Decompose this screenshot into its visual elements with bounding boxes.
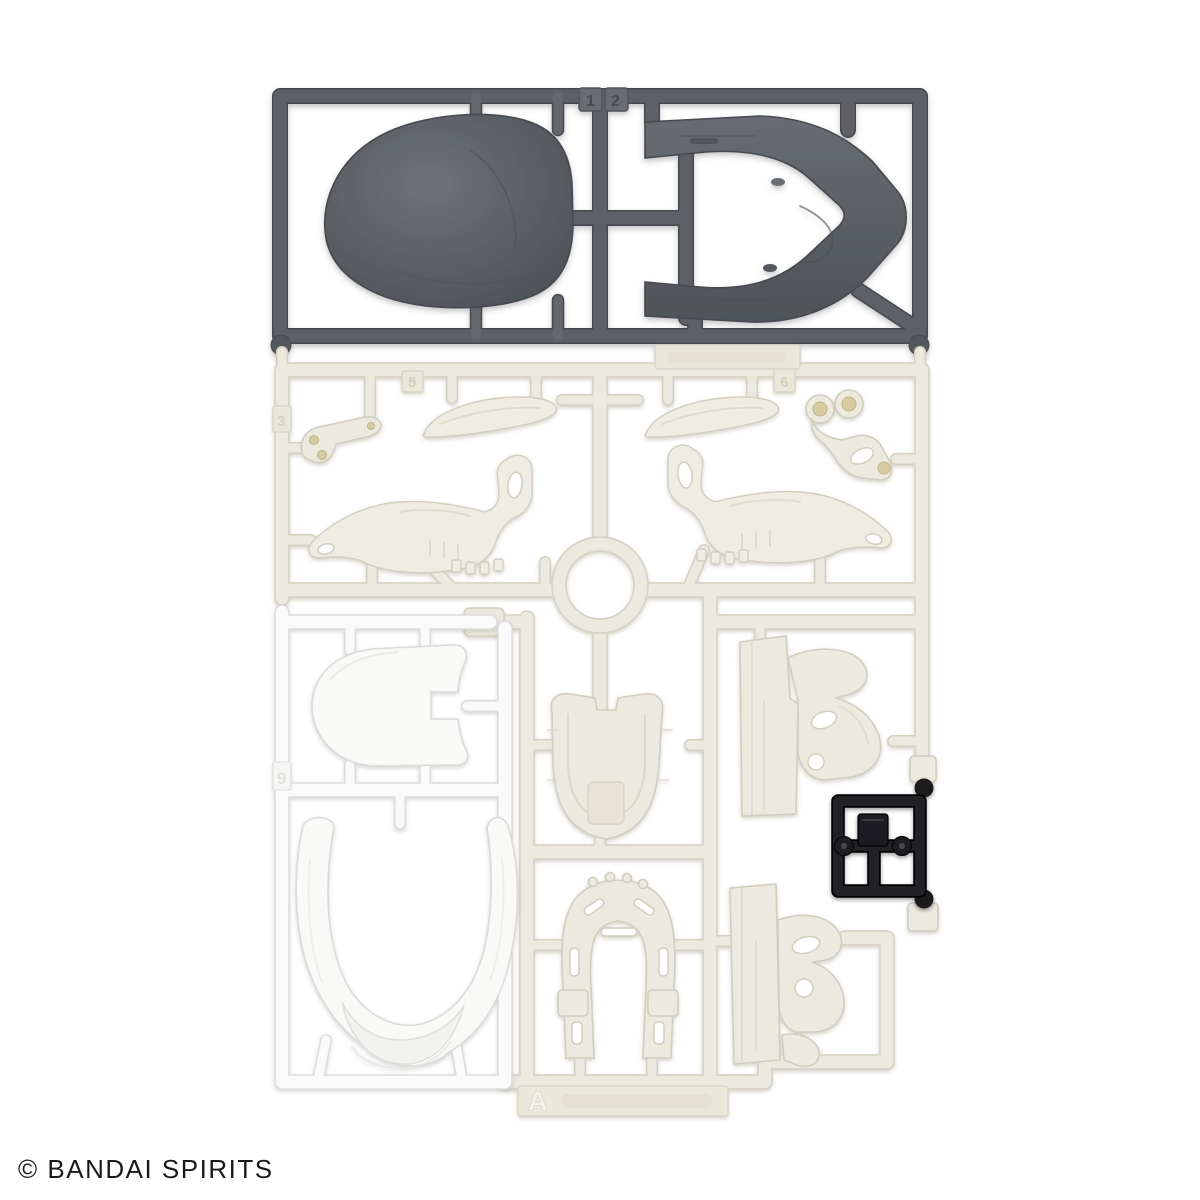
ivory-mech-part-lower xyxy=(730,884,844,1066)
ivory-mech-part-upper xyxy=(740,636,881,816)
gray-canopy-part xyxy=(325,114,573,307)
tag-2-number: 2 xyxy=(611,93,620,110)
ivory-leaf-part-left xyxy=(423,397,556,437)
tag-9-number: 9 xyxy=(277,769,286,788)
sprue-illustration: 1 2 xyxy=(0,0,1200,1200)
ivory-cockpit-part xyxy=(548,694,672,839)
gray-runner: 1 2 xyxy=(271,88,929,355)
white-subframe: 9 xyxy=(273,612,517,1082)
runner-letter-tab: A xyxy=(518,1086,728,1116)
white-skirt-part xyxy=(296,818,517,1068)
runner-letter: A xyxy=(528,1086,548,1116)
tag-3-number: 3 xyxy=(277,413,285,430)
ivory-arch-part xyxy=(558,873,678,1059)
tag-6-number: 6 xyxy=(780,374,788,391)
tag-1-number: 1 xyxy=(586,93,595,110)
ivory-blade-part-left xyxy=(309,455,532,574)
ivory-hinge-arm-part xyxy=(301,417,381,463)
ivory-ring-part xyxy=(559,544,641,626)
anchor-tab-top xyxy=(910,756,936,782)
copyright-text: © BANDAI SPIRITS xyxy=(18,1154,274,1184)
product-photo: 1 2 xyxy=(0,0,1200,1200)
tag-5-number: 5 xyxy=(408,374,416,391)
black-runner xyxy=(835,779,934,909)
white-shell-part xyxy=(312,645,468,766)
ivory-joint-part xyxy=(806,390,892,480)
